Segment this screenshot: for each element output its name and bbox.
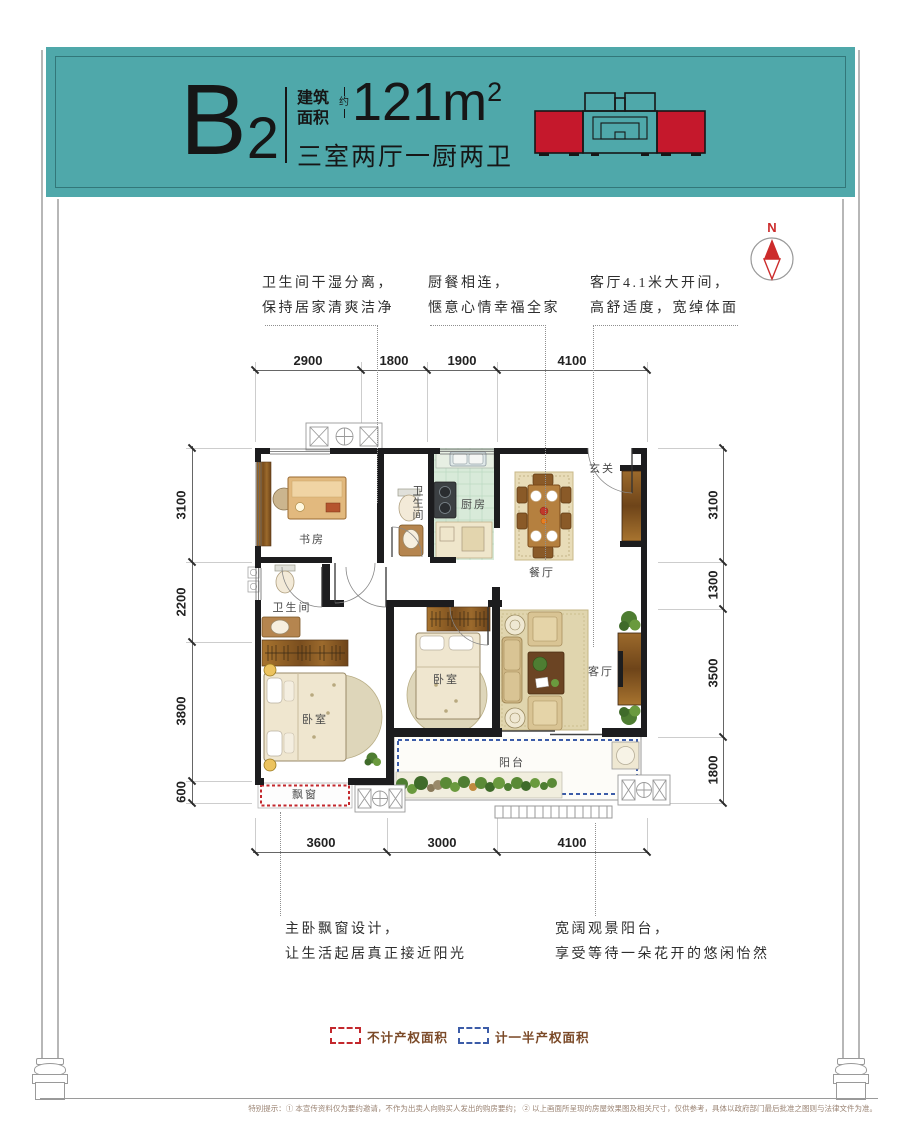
dim-line-left [192, 446, 193, 805]
header-banner: B 2 建筑 面积 约 121m2 三室两厅一厨两卫 [46, 47, 855, 197]
leader-line [595, 823, 596, 916]
compass-dial-icon [749, 236, 795, 282]
callout-bathroom: 卫生间干湿分离， 保持居家清爽洁净 [262, 271, 394, 321]
room-label-kitchen: 厨房 [461, 496, 487, 512]
pillow-icon [420, 636, 444, 650]
leader-line [377, 325, 378, 503]
living-room-furniture [498, 610, 642, 730]
dim-label: 3800 [174, 697, 189, 726]
leader-line [593, 325, 594, 647]
area-exponent: 2 [487, 77, 502, 107]
dim-label: 3100 [706, 491, 721, 520]
callout-living: 客厅4.1米大开间， 高舒适度，宽绰体面 [590, 271, 739, 321]
unit-letter: B [180, 79, 247, 161]
north-label: N [740, 220, 804, 235]
floor-plan [240, 415, 700, 835]
room-label-second-bedroom: 卧室 [433, 671, 459, 687]
dim-label: 3000 [428, 835, 457, 850]
right-column-line-inner [842, 199, 844, 1058]
ac-unit-icon [618, 775, 670, 805]
approx-mark: 约 [339, 87, 349, 118]
sink-icon [271, 620, 289, 634]
dim-label: 3100 [174, 491, 189, 520]
window-seat-icon [257, 462, 271, 546]
legend-swatch-non-property [330, 1027, 361, 1044]
ac-unit-icon [355, 785, 405, 812]
highlighted-unit-right [657, 111, 705, 153]
dim-line-top [253, 370, 649, 371]
dim-label: 1900 [448, 353, 477, 368]
room-label-master-bedroom: 卧室 [302, 711, 328, 727]
header-divider [285, 87, 287, 163]
dim-line-bottom [253, 852, 649, 853]
room-label-living: 客厅 [588, 663, 614, 679]
leader-line [430, 325, 546, 326]
disclaimer-text: 特别提示：① 本宣传资料仅为要约邀请，不作为出卖人向购买人发出的购房要约； ② … [248, 1103, 877, 1114]
dim-line-right [723, 446, 724, 805]
side-table-icon [505, 615, 525, 635]
pillow-icon [267, 731, 282, 756]
dim-label: 3600 [307, 835, 336, 850]
leader-line [593, 325, 738, 326]
footer-rule [40, 1098, 878, 1099]
highlighted-unit-left [535, 111, 583, 153]
callout-bay-window: 主卧飘窗设计， 让生活起居真正接近阳光 [285, 917, 467, 967]
room-label-bath-left: 卫生间 [273, 599, 312, 615]
unit-code: B 2 [180, 79, 279, 161]
sink-icon [403, 530, 419, 549]
dim-label: 1800 [380, 353, 409, 368]
legend-label-non-property: 不计产权面积 [367, 1027, 448, 1046]
floorplan-flyer: B 2 建筑 面积 约 121m2 三室两厅一厨两卫 [0, 0, 900, 1148]
dim-label: 2900 [294, 353, 323, 368]
room-label-bay-window: 飘窗 [292, 786, 318, 802]
side-table-icon [505, 708, 525, 728]
dim-label: 1300 [706, 571, 721, 600]
plant-icon [533, 657, 547, 671]
dim-label: 600 [174, 781, 189, 803]
leader-line [545, 325, 546, 560]
layout-spec: 三室两厅一厨两卫 [297, 137, 513, 173]
area-value: 121m2 [352, 75, 502, 129]
left-column-line-inner [57, 199, 59, 1058]
dim-label: 4100 [558, 353, 587, 368]
legend-swatch-half-property [458, 1027, 489, 1044]
nightstand-lamp-icon [264, 759, 276, 771]
tv-icon [618, 651, 623, 687]
building-key-icon [533, 84, 707, 160]
callout-kitchen-dining: 厨餐相连， 惬意心情幸福全家 [428, 271, 560, 321]
balcony-area [394, 737, 641, 818]
nightstand-lamp-icon [264, 664, 276, 676]
room-label-balcony: 阳台 [499, 754, 525, 770]
leader-line [280, 812, 281, 916]
ac-unit-icon [306, 423, 382, 450]
desk-lamp-icon [296, 503, 305, 512]
room-label-study: 书房 [299, 531, 325, 547]
room-label-dining: 餐厅 [529, 564, 555, 580]
callout-balcony: 宽阔观景阳台， 享受等待一朵花开的悠闲怡然 [555, 917, 770, 967]
right-column-line-outer [858, 50, 860, 1058]
dining-table-icon [515, 472, 573, 560]
pillow-icon [267, 678, 282, 703]
compass-icon: N [740, 220, 804, 292]
coffee-table-icon [528, 652, 564, 694]
books-icon [326, 503, 340, 512]
pillow-icon [449, 636, 473, 650]
unit-number: 2 [247, 116, 279, 161]
dim-label: 1800 [706, 756, 721, 785]
dim-label: 2200 [174, 588, 189, 617]
leader-line [265, 325, 378, 326]
legend-label-half-property: 计一半产权面积 [495, 1027, 590, 1046]
left-column-line-outer [41, 50, 43, 1058]
room-label-bath-top: 卫生间 [409, 485, 425, 521]
dim-label: 3500 [706, 659, 721, 688]
dim-label: 4100 [558, 835, 587, 850]
area-label: 建筑 面积 [297, 89, 329, 129]
balcony-railing-icon [495, 806, 612, 818]
